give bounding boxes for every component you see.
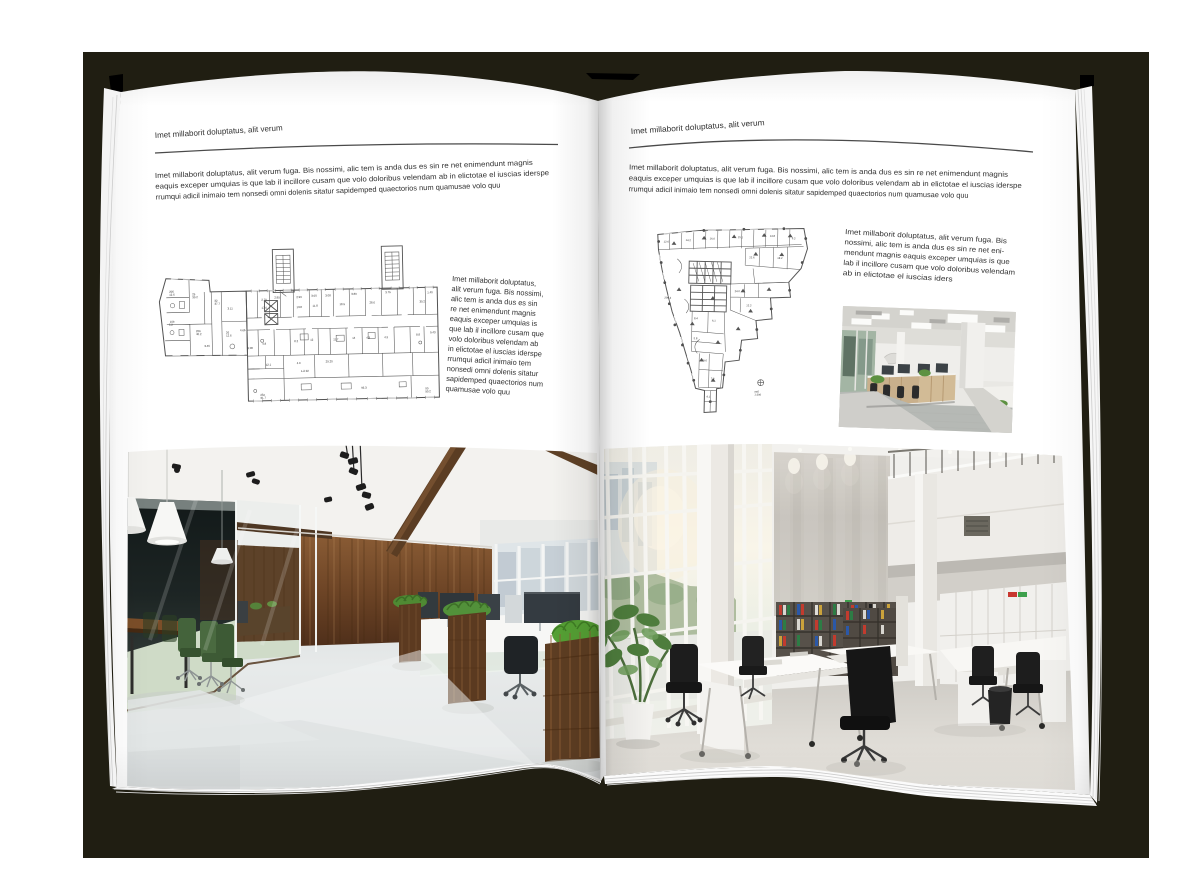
svg-text:30.2: 30.2 (419, 299, 425, 303)
svg-text:3.89: 3.89 (351, 292, 357, 296)
svg-text:5.8: 5.8 (694, 336, 698, 340)
svg-text:4.3: 4.3 (366, 336, 370, 340)
svg-text:5.43: 5.43 (430, 330, 436, 334)
svg-text:8.8: 8.8 (416, 332, 420, 336)
svg-text:4.9: 4.9 (384, 335, 388, 339)
svg-text:4.9: 4.9 (297, 361, 301, 365)
svg-text:5.2: 5.2 (169, 323, 173, 327)
svg-text:3.08: 3.08 (247, 346, 253, 350)
svg-text:14.8: 14.8 (770, 234, 776, 238)
svg-text:4.1: 4.1 (706, 395, 710, 399)
svg-text:7.2: 7.2 (711, 377, 715, 381)
svg-text:11.8: 11.8 (312, 304, 318, 308)
svg-text:50.2: 50.2 (425, 389, 431, 393)
svg-text:2.70: 2.70 (261, 298, 267, 302)
svg-text:17.6: 17.6 (261, 306, 267, 310)
svg-text:22.6: 22.6 (749, 255, 755, 259)
svg-text:3.75: 3.75 (385, 290, 391, 294)
svg-text:1.40: 1.40 (427, 290, 433, 294)
svg-text:3.00: 3.00 (311, 294, 317, 298)
svg-text:11.7: 11.7 (333, 337, 339, 341)
svg-text:2.90: 2.90 (296, 295, 302, 299)
svg-text:95.3: 95.3 (361, 386, 367, 390)
svg-text:12.6: 12.6 (664, 240, 670, 244)
svg-text:4.8: 4.8 (262, 342, 266, 346)
svg-text:31.7: 31.7 (260, 396, 266, 400)
svg-text:12.2: 12.2 (746, 303, 752, 307)
svg-text:3.08: 3.08 (325, 293, 331, 297)
svg-text:25.20: 25.20 (326, 359, 334, 363)
svg-text:12.1: 12.1 (266, 363, 272, 367)
svg-text:12.6: 12.6 (169, 293, 175, 297)
svg-text:18.5: 18.5 (339, 302, 345, 306)
svg-text:2.85: 2.85 (274, 295, 280, 299)
svg-text:40.2: 40.2 (196, 332, 202, 336)
svg-text:39.2: 39.2 (192, 295, 198, 299)
svg-text:1-й.92: 1-й.92 (301, 369, 309, 373)
svg-text:8.2: 8.2 (294, 339, 298, 343)
svg-text:14.2: 14.2 (686, 238, 692, 242)
svg-text:4.65: 4.65 (240, 328, 246, 332)
svg-text:13.8: 13.8 (296, 305, 302, 309)
svg-text:15.1: 15.1 (738, 235, 744, 239)
svg-text:16.0: 16.0 (710, 237, 716, 241)
svg-text:24.0: 24.0 (735, 289, 741, 293)
svg-text:3.11: 3.11 (227, 306, 233, 310)
svg-text:12: 12 (310, 338, 314, 342)
svg-text:28.6: 28.6 (369, 300, 375, 304)
svg-text:18.2: 18.2 (777, 256, 783, 260)
svg-text:1:200: 1:200 (754, 393, 761, 397)
svg-text:12.6: 12.6 (226, 333, 232, 337)
svg-text:8.4: 8.4 (694, 316, 698, 320)
svg-text:37.7: 37.7 (214, 302, 220, 306)
svg-text:14: 14 (352, 336, 356, 340)
svg-text:206.4: 206.4 (664, 296, 671, 300)
svg-text:9.2: 9.2 (792, 236, 796, 240)
svg-text:9.6: 9.6 (703, 358, 707, 362)
svg-text:6.1: 6.1 (712, 319, 716, 323)
svg-text:3.46: 3.46 (204, 344, 210, 348)
